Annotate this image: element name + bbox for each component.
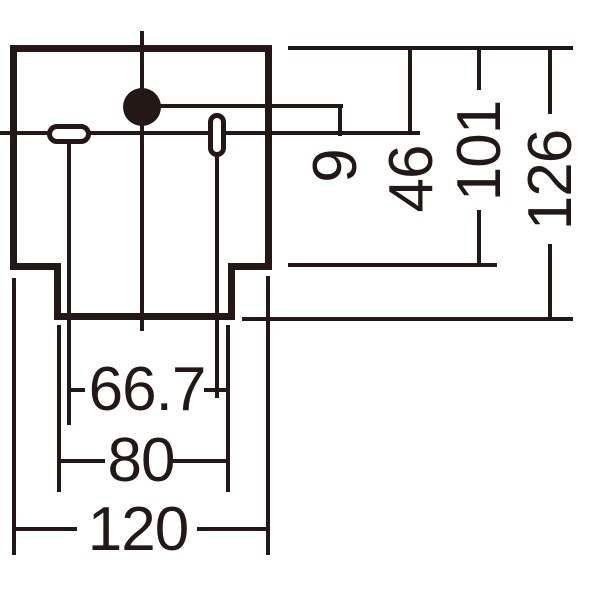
dim-126-line-upper [548, 46, 552, 114]
step-reference-line [288, 263, 497, 267]
dim-120-segment-left [14, 527, 77, 531]
dim-101-line-lower [477, 210, 481, 267]
fixture-step-left [10, 263, 59, 270]
dim-label-66-7: 66.7 [89, 359, 206, 421]
dim-80-segment-right [172, 459, 230, 463]
dim-101-line-upper [477, 46, 481, 90]
dim-80-segment-left [59, 459, 105, 463]
fixture-lower-right-edge [228, 263, 235, 320]
dim-66-7-tick-left [67, 388, 85, 392]
dim-120-ext-right [266, 276, 270, 555]
mounting-slot-vertical [208, 113, 226, 157]
mounting-slot-horizontal [47, 124, 91, 144]
wiring-hole-dot [123, 88, 161, 126]
fixture-outline-left [10, 45, 17, 270]
dim-label-9: 9 [305, 149, 367, 182]
dim-46-line [408, 46, 412, 135]
dim-label-46: 46 [381, 146, 443, 213]
dim-label-80: 80 [108, 430, 175, 492]
top-reference-line [288, 46, 573, 50]
dim-66-7-tick-right [204, 388, 230, 392]
fixture-outline-top [10, 45, 272, 52]
dim-120-segment-right [197, 527, 270, 531]
dim-126-line-lower [548, 244, 552, 321]
center-axis-line [140, 31, 144, 331]
slot-left-center-line [67, 143, 71, 425]
dim-120-ext-left [12, 278, 16, 555]
bottom-reference-line [242, 317, 573, 321]
fixture-outline-bottom [54, 313, 235, 320]
fixture-outline-right [265, 45, 272, 270]
dim-9-line [338, 104, 342, 136]
dim-label-101: 101 [449, 101, 511, 201]
dimension-diagram: 9 46 101 126 66.7 80 120 [0, 0, 600, 600]
dim-label-120: 120 [88, 499, 188, 561]
slot-right-center-line [215, 156, 219, 398]
dim-label-126: 126 [520, 130, 582, 230]
fixture-lower-left-edge [54, 263, 61, 320]
dim-80-ext-left [57, 325, 61, 492]
dim-80-ext-right [226, 325, 230, 492]
wiring-hole-level-line [142, 104, 343, 108]
